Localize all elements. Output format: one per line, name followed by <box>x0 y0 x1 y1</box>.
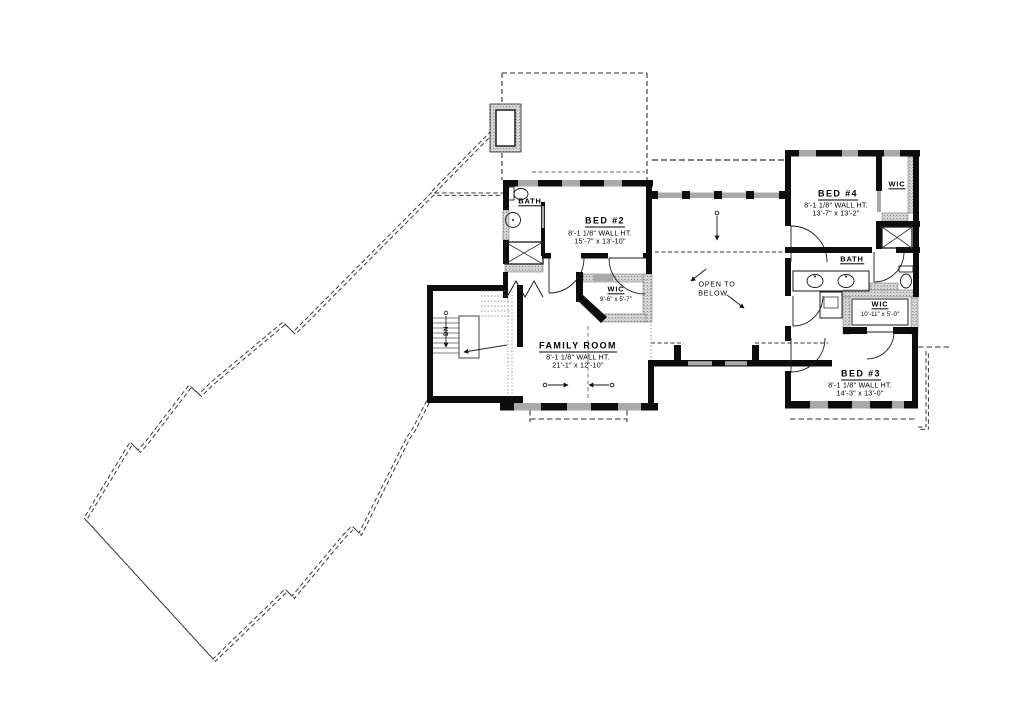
room-label-family-room: FAMILY ROOM <box>539 342 617 353</box>
shower-x-box <box>882 227 912 248</box>
room-label-bed2: BED #2 <box>585 217 625 228</box>
room-label-wic-bed2: WIC <box>607 285 624 294</box>
room-label-bath-bed2: BATH <box>518 197 542 206</box>
slope-arrow-left-origin <box>610 383 614 387</box>
stairwell <box>433 291 512 396</box>
dimensions-bed3: 14'-3" x 13'-0" <box>836 389 883 396</box>
room-label-bath-hall: BATH <box>840 255 864 264</box>
linen-closet-x-box <box>505 242 543 264</box>
floor-plan-sheet: BED #2 8'-1 1/8" WALL HT. 15'-7" x 13'-1… <box>0 0 1024 703</box>
room-label-bed4: BED #4 <box>818 190 858 201</box>
dimensions-wic-bed2: 9'-6" x 5'-7" <box>600 297 632 303</box>
open-to-below-line2: BELOW <box>698 289 727 296</box>
door-hall-bath <box>874 252 904 282</box>
dimensions-bed4: 13'-7" x 13'-2" <box>812 209 859 216</box>
linen-cabinet <box>820 292 842 318</box>
open-to-below-line1: OPEN TO <box>699 280 736 287</box>
stair-direction-label: DN <box>444 326 450 336</box>
dimensions-wic-bed3: 10'-11" x 5'-0" <box>861 312 900 318</box>
dimensions-bed2: 15'-7" x 13'-10" <box>574 237 625 244</box>
room-label-wic-bed3: WIC <box>871 300 888 309</box>
double-vanity <box>793 271 869 291</box>
toilet-hall-bath <box>899 266 913 288</box>
floor-plan-canvas <box>0 0 1024 703</box>
room-label-wic-bed4: WIC <box>888 180 905 189</box>
slope-arrow-right-origin <box>543 383 547 387</box>
bifold-closet-doors <box>507 281 543 297</box>
open-below-arrow-lower <box>727 295 744 308</box>
door-bed3-vestibule <box>793 296 823 326</box>
door-wic-bed3 <box>867 332 894 359</box>
chimney <box>490 104 521 152</box>
dimensions-family-room: 21'-1" x 12'-10" <box>552 361 603 368</box>
door-bed4 <box>791 226 827 262</box>
room-label-bed3: BED #3 <box>841 370 881 381</box>
down-arrow-origin <box>444 311 448 315</box>
gallery-arrow-origin <box>715 211 719 215</box>
